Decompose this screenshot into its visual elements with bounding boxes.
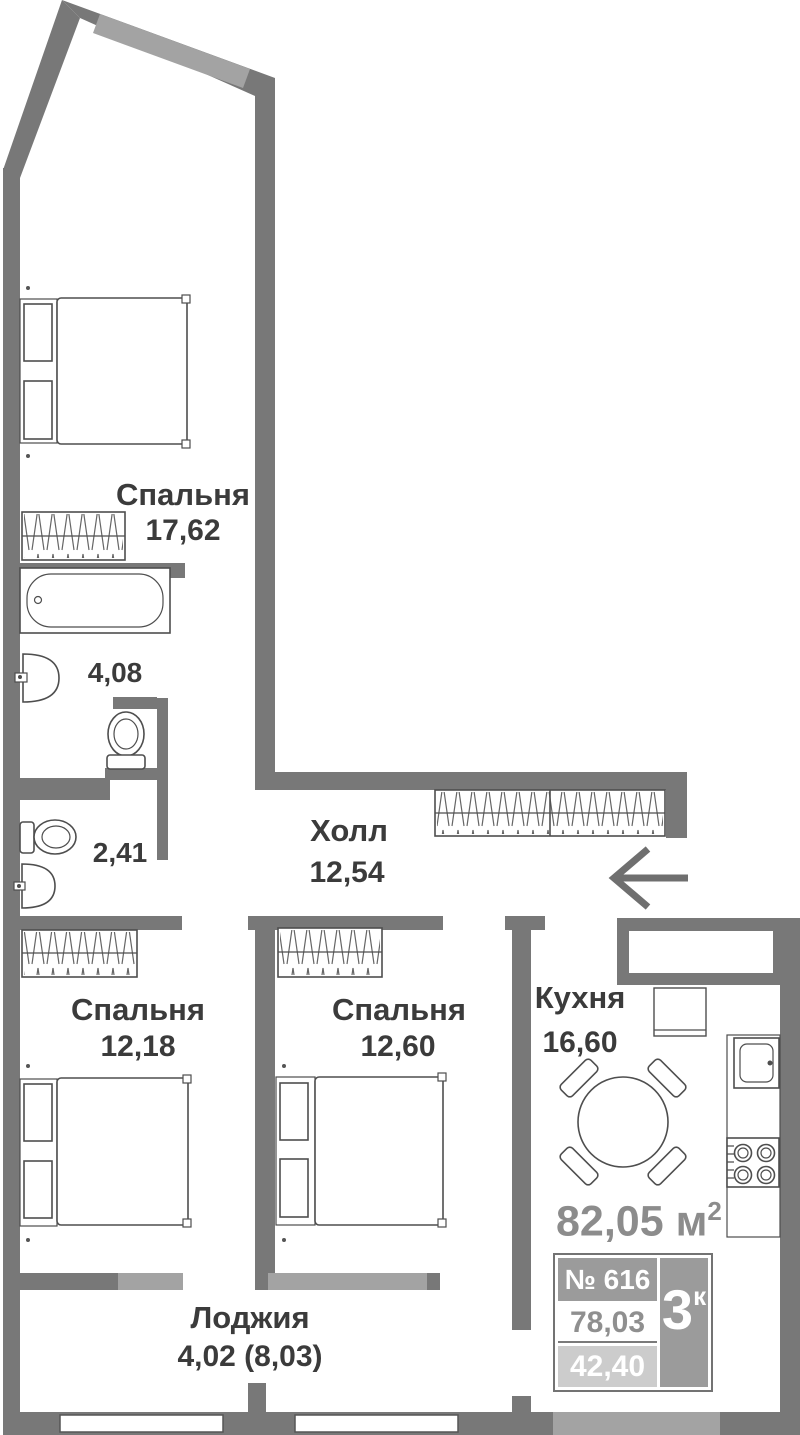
wall-wc-top-a — [20, 778, 110, 800]
wardrobe-icon — [435, 790, 665, 836]
marker-dot — [282, 1238, 286, 1242]
double-bed-icon — [276, 1073, 446, 1227]
kitchen-cabinet-icon — [654, 988, 706, 1036]
marker-dot — [282, 1064, 286, 1068]
marker-dot — [26, 286, 30, 290]
kitchen-top-block-inner — [629, 931, 773, 973]
nightstand-icon — [24, 1084, 52, 1141]
wall-loggia-cap — [427, 1273, 440, 1290]
label-bedroom-left-area: 12,18 — [100, 1030, 175, 1063]
label-bedroom-main-area: 17,62 — [145, 514, 220, 547]
entrance-arrow-icon — [614, 849, 688, 907]
apartment-info-badge: № 616 78,03 42,40 3к — [553, 1253, 713, 1392]
label-hall-area: 12,54 — [309, 856, 384, 889]
label-kitchen-name: Кухня — [535, 980, 626, 1015]
wardrobe-icon — [22, 512, 125, 560]
nightstand-icon — [24, 304, 52, 361]
label-hall-name: Холл — [310, 813, 388, 848]
kitchen-sink-icon — [734, 1038, 779, 1088]
wardrobe-icon — [278, 928, 382, 977]
apartment-rooms-count: 3к — [660, 1258, 708, 1387]
rooms-count-value: 3 — [662, 1277, 693, 1342]
label-bedroom-mid-area: 12,60 — [360, 1030, 435, 1063]
toilet-icon — [20, 820, 76, 854]
nightstand-icon — [280, 1083, 308, 1140]
window-loggia-right — [295, 1415, 458, 1432]
nightstand-icon — [280, 1159, 308, 1217]
double-bed-icon — [20, 1075, 191, 1227]
wall-bedrooms-top-left — [20, 916, 182, 930]
total-area-value: 82,05 — [556, 1197, 664, 1245]
label-kitchen-area: 16,60 — [542, 1026, 617, 1059]
label-wc-area: 2,41 — [93, 837, 148, 868]
apartment-area-total: 78,03 — [558, 1304, 657, 1343]
label-bedroom-main-name: Спальня — [116, 477, 250, 512]
total-area-unit: м — [676, 1197, 708, 1245]
sink-icon — [14, 864, 55, 908]
wall-hall-top — [255, 772, 687, 790]
apartment-area-living: 42,40 — [558, 1346, 657, 1387]
nightstand-icon — [24, 381, 52, 439]
wall-kitchen-divider-stub — [512, 1396, 531, 1415]
wall-right-upper — [255, 78, 275, 776]
window-kitchen — [553, 1412, 720, 1435]
window-loggia-door-left — [118, 1273, 183, 1290]
wall-bedroom-divider — [255, 916, 275, 1290]
label-loggia-name: Лоджия — [190, 1300, 309, 1335]
interior-walls — [18, 563, 545, 1415]
stove-icon — [727, 1138, 779, 1187]
window-slope — [93, 14, 250, 88]
apartment-number: № 616 — [558, 1258, 657, 1301]
double-bed-icon — [20, 295, 190, 448]
marker-dot — [26, 454, 30, 458]
marker-dot — [26, 1064, 30, 1068]
wall-left — [3, 168, 20, 1435]
wall-toilet-niche — [113, 697, 157, 709]
marker-dot — [26, 1238, 30, 1242]
wall-diagonal-left — [3, 0, 80, 178]
label-bathroom-area: 4,08 — [88, 657, 143, 688]
label-loggia-area: 4,02 (8,03) — [177, 1340, 322, 1373]
label-bedroom-mid-name: Спальня — [332, 992, 466, 1027]
window-loggia-door-mid — [268, 1273, 427, 1290]
label-bedroom-left-name: Спальня — [71, 992, 205, 1027]
sink-icon — [15, 654, 59, 702]
wall-kitchen-divider — [512, 916, 531, 1330]
wall-right-lower — [780, 918, 800, 1435]
wall-loggia-stub — [248, 1383, 266, 1413]
bathtub-icon — [20, 568, 170, 633]
total-area-sup: 2 — [707, 1196, 721, 1226]
window-loggia-left — [60, 1415, 223, 1432]
wall-entrance-jamb — [666, 790, 687, 838]
wall-loggia-top-dark — [18, 1273, 118, 1290]
dining-table-icon — [558, 1057, 687, 1186]
nightstand-icon — [24, 1161, 52, 1218]
total-area-label: 82,05 м2 — [556, 1198, 776, 1243]
toilet-icon — [107, 712, 145, 769]
floor-plan: Спальня 17,62 4,08 2,41 Холл 12,54 Спаль… — [0, 0, 800, 1435]
wardrobe-icon — [22, 930, 137, 977]
